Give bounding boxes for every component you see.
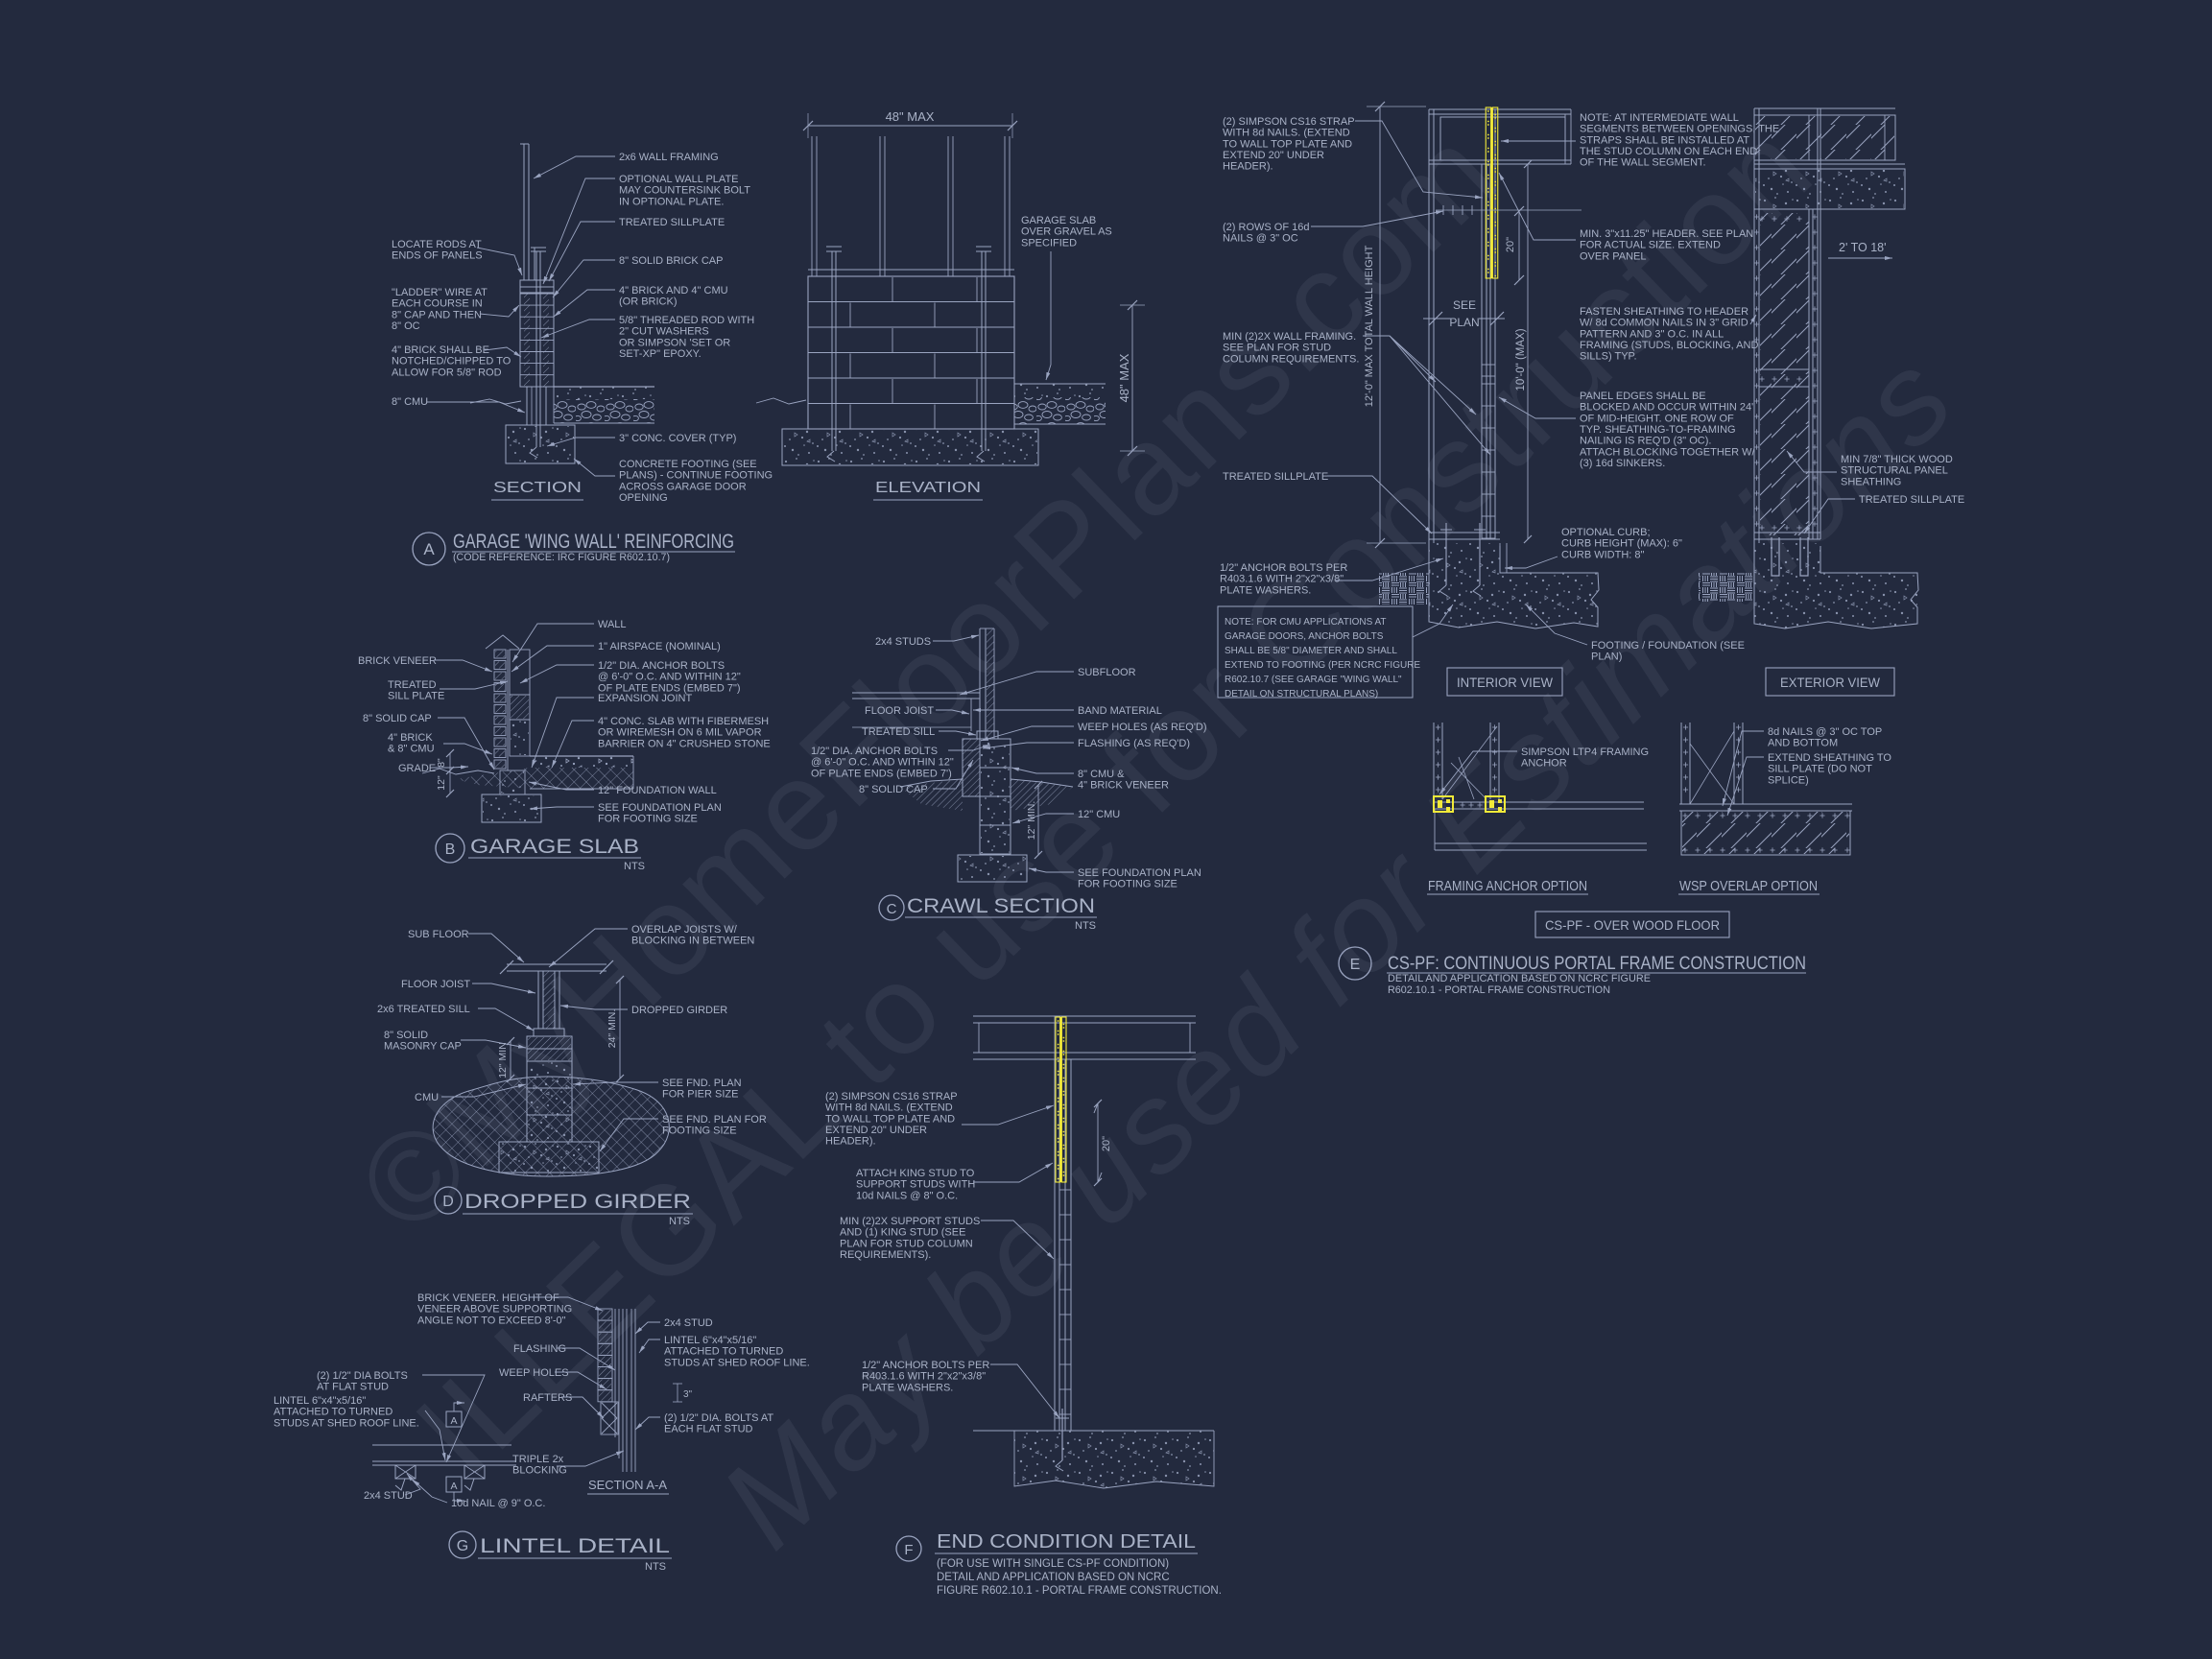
svg-text:SUB FLOOR: SUB FLOOR: [408, 929, 469, 940]
svg-text:C: C: [887, 901, 897, 917]
svg-text:R602.10.1 - PORTAL FRAME CONST: R602.10.1 - PORTAL FRAME CONSTRUCTION: [1388, 984, 1610, 996]
svg-text:TREATED SILL: TREATED SILL: [862, 726, 935, 738]
svg-text:20": 20": [1101, 1136, 1112, 1151]
svg-text:12'-0" MAX TOTAL WALL HEIGHT: 12'-0" MAX TOTAL WALL HEIGHT: [1364, 245, 1375, 407]
svg-text:3": 3": [683, 1389, 693, 1400]
svg-text:GARAGE SLAB: GARAGE SLAB: [470, 836, 639, 858]
svg-text:8" CMU: 8" CMU: [392, 396, 428, 408]
svg-text:FRAMING ANCHOR OPTION: FRAMING ANCHOR OPTION: [1428, 878, 1587, 894]
svg-text:1" AIRSPACE (NOMINAL): 1" AIRSPACE (NOMINAL): [598, 641, 721, 652]
svg-text:12" CMU: 12" CMU: [1078, 809, 1120, 820]
svg-text:8" SOLID BRICK CAP: 8" SOLID BRICK CAP: [619, 255, 723, 267]
svg-text:WALL: WALL: [598, 619, 627, 630]
svg-text:8" SOLID CAP: 8" SOLID CAP: [363, 713, 432, 724]
svg-text:FLOOR JOIST: FLOOR JOIST: [865, 705, 934, 717]
svg-text:2x4 STUDS: 2x4 STUDS: [875, 636, 931, 648]
svg-text:TREATEDSILL PLATE: TREATEDSILL PLATE: [388, 679, 444, 702]
svg-text:FIGURE R602.10.1 - PORTAL FRAM: FIGURE R602.10.1 - PORTAL FRAME CONSTRUC…: [937, 1585, 1222, 1597]
svg-text:4" CONC. SLAB WITH FIBERMESHOR: 4" CONC. SLAB WITH FIBERMESHOR WIREMESH …: [598, 716, 771, 749]
svg-text:2x4 STUD: 2x4 STUD: [664, 1317, 713, 1329]
svg-text:ELEVATION: ELEVATION: [875, 480, 981, 496]
svg-text:D: D: [442, 1194, 454, 1210]
svg-text:EXTERIOR VIEW: EXTERIOR VIEW: [1780, 675, 1881, 690]
svg-text:END CONDITION DETAIL: END CONDITION DETAIL: [937, 1531, 1196, 1552]
svg-text:FLOOR JOIST: FLOOR JOIST: [401, 979, 470, 990]
svg-text:48" MAX: 48" MAX: [1117, 353, 1131, 402]
svg-text:RAFTERS: RAFTERS: [523, 1392, 572, 1404]
svg-text:CMU: CMU: [415, 1092, 439, 1103]
svg-text:1/2" DIA. ANCHOR BOLTS@ 6'-0": 1/2" DIA. ANCHOR BOLTS@ 6'-0" O.C. AND W…: [598, 660, 741, 694]
svg-text:TRIPLE 2xBLOCKING: TRIPLE 2xBLOCKING: [512, 1454, 567, 1477]
svg-text:CS-PF: CONTINUOUS PORTAL FRAME: CS-PF: CONTINUOUS PORTAL FRAME CONSTRUCT…: [1388, 954, 1806, 974]
svg-text:PLAN: PLAN: [1449, 316, 1479, 329]
svg-text:12": 12": [436, 775, 447, 791]
svg-text:G: G: [457, 1538, 468, 1554]
svg-text:24" MIN.: 24" MIN.: [607, 1009, 618, 1049]
svg-text:SECTION A-A: SECTION A-A: [588, 1479, 668, 1492]
svg-text:B: B: [445, 841, 456, 858]
svg-text:CRAWL SECTION: CRAWL SECTION: [907, 895, 1095, 917]
svg-text:FLASHING: FLASHING: [513, 1343, 566, 1355]
svg-text:SECTION: SECTION: [493, 480, 582, 496]
svg-text:2x4 STUD: 2x4 STUD: [364, 1490, 413, 1502]
svg-text:SEE: SEE: [1453, 298, 1476, 312]
svg-text:TREATED SILLPLATE: TREATED SILLPLATE: [1859, 494, 1964, 506]
svg-text:SEE FND. PLANFOR PIER SIZE: SEE FND. PLANFOR PIER SIZE: [662, 1078, 742, 1101]
svg-text:E: E: [1350, 957, 1361, 973]
svg-text:1/2" DIA. ANCHOR BOLTS@ 6'-0": 1/2" DIA. ANCHOR BOLTS@ 6'-0" O.C. AND W…: [811, 746, 954, 779]
svg-text:A: A: [450, 1481, 457, 1492]
svg-text:NTS: NTS: [669, 1216, 690, 1227]
svg-text:TREATED SILLPLATE: TREATED SILLPLATE: [1223, 471, 1328, 483]
svg-text:A: A: [423, 540, 435, 558]
svg-text:F: F: [904, 1542, 913, 1558]
svg-text:BRICK VENEER: BRICK VENEER: [358, 655, 437, 667]
svg-text:PANEL EDGES SHALL BEBLOCKED AN: PANEL EDGES SHALL BEBLOCKED AND OCCUR WI…: [1580, 391, 1755, 469]
svg-text:2x6 WALL FRAMING: 2x6 WALL FRAMING: [619, 152, 719, 163]
svg-text:NTS: NTS: [1075, 920, 1096, 932]
svg-text:NTS: NTS: [624, 861, 645, 872]
svg-text:DETAIL AND APPLICATION BASED O: DETAIL AND APPLICATION BASED ON NCRC FIG…: [1388, 973, 1651, 984]
svg-text:48" MAX: 48" MAX: [886, 109, 935, 124]
svg-text:8" SOLID CAP: 8" SOLID CAP: [859, 784, 928, 795]
svg-text:12" MIN.: 12" MIN.: [1026, 801, 1037, 841]
svg-text:12" MIN: 12" MIN: [497, 1042, 509, 1078]
svg-text:WEEP HOLES: WEEP HOLES: [499, 1367, 569, 1379]
svg-text:20": 20": [1505, 237, 1516, 252]
svg-text:BAND MATERIAL: BAND MATERIAL: [1078, 705, 1162, 717]
svg-text:ATTACH KING STUD TOSUPPORT STU: ATTACH KING STUD TOSUPPORT STUDS WITH10d…: [856, 1168, 975, 1201]
svg-text:WEEP HOLES (AS REQ'D): WEEP HOLES (AS REQ'D): [1078, 722, 1207, 733]
svg-text:8": 8": [436, 758, 447, 768]
svg-text:GRADE: GRADE: [398, 763, 436, 774]
svg-text:12" FOUNDATION WALL: 12" FOUNDATION WALL: [598, 785, 717, 796]
svg-text:TREATED SILLPLATE: TREATED SILLPLATE: [619, 217, 725, 228]
svg-text:DROPPED GIRDER: DROPPED GIRDER: [464, 1191, 691, 1213]
svg-text:EXPANSION JOINT: EXPANSION JOINT: [598, 693, 692, 704]
svg-text:2' TO 18': 2' TO 18': [1839, 241, 1886, 254]
svg-text:A: A: [450, 1415, 457, 1427]
svg-text:LINTEL DETAIL: LINTEL DETAIL: [480, 1535, 670, 1557]
svg-text:INTERIOR VIEW: INTERIOR VIEW: [1457, 675, 1554, 690]
svg-text:NTS: NTS: [645, 1561, 666, 1573]
svg-text:SUBFLOOR: SUBFLOOR: [1078, 667, 1136, 678]
svg-text:10d NAIL @ 9" O.C.: 10d NAIL @ 9" O.C.: [451, 1498, 545, 1509]
svg-text:GARAGE 'WING WALL' REINFORCING: GARAGE 'WING WALL' REINFORCING: [453, 531, 734, 553]
svg-text:OVERLAP JOISTS W/BLOCKING IN B: OVERLAP JOISTS W/BLOCKING IN BETWEEN: [631, 924, 754, 947]
svg-text:(CODE REFERENCE: IRC FIGURE R6: (CODE REFERENCE: IRC FIGURE R602.10.7): [453, 552, 670, 563]
svg-text:DROPPED GIRDER: DROPPED GIRDER: [631, 1005, 727, 1016]
svg-text:10'-0" (MAX): 10'-0" (MAX): [1515, 328, 1527, 391]
svg-text:LOCATE RODS ATENDS OF PANELS: LOCATE RODS ATENDS OF PANELS: [392, 239, 483, 262]
svg-text:(2) ROWS OF 16dNAILS @ 3" OC: (2) ROWS OF 16dNAILS @ 3" OC: [1223, 222, 1309, 245]
svg-text:FLASHING (AS REQ'D): FLASHING (AS REQ'D): [1078, 738, 1190, 749]
svg-text:WSP OVERLAP OPTION: WSP OVERLAP OPTION: [1679, 878, 1818, 894]
svg-text:CS-PF - OVER WOOD FLOOR: CS-PF - OVER WOOD FLOOR: [1545, 917, 1720, 933]
svg-text:4" BRICK& 8" CMU: 4" BRICK& 8" CMU: [388, 732, 435, 755]
svg-text:DETAIL AND APPLICATION BASED O: DETAIL AND APPLICATION BASED ON NCRC: [937, 1572, 1170, 1583]
svg-text:3" CONC. COVER (TYP): 3" CONC. COVER (TYP): [619, 433, 736, 444]
svg-text:2x6 TREATED SILL: 2x6 TREATED SILL: [377, 1004, 470, 1015]
svg-text:(FOR USE WITH SINGLE CS-PF CON: (FOR USE WITH SINGLE CS-PF CONDITION): [937, 1558, 1169, 1570]
